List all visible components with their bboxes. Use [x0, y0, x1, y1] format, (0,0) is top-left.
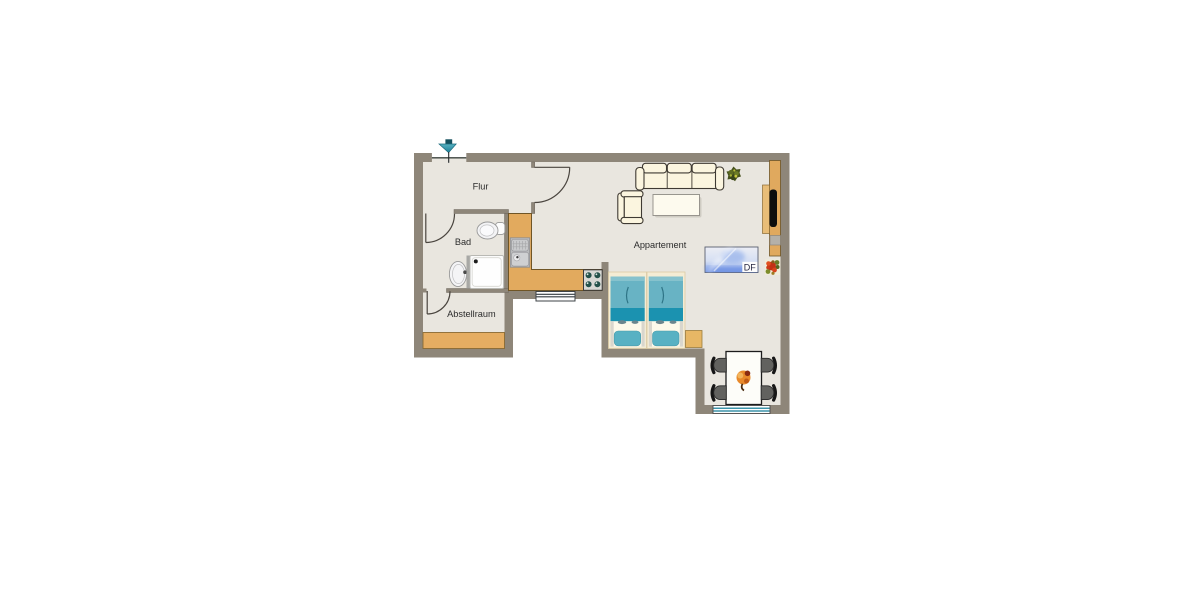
svg-text:Flur: Flur [473, 182, 489, 192]
svg-text:Appartement: Appartement [634, 240, 687, 250]
svg-text:Bad: Bad [455, 237, 471, 247]
svg-text:DF: DF [744, 262, 756, 272]
svg-text:Abstellraum: Abstellraum [447, 309, 496, 319]
